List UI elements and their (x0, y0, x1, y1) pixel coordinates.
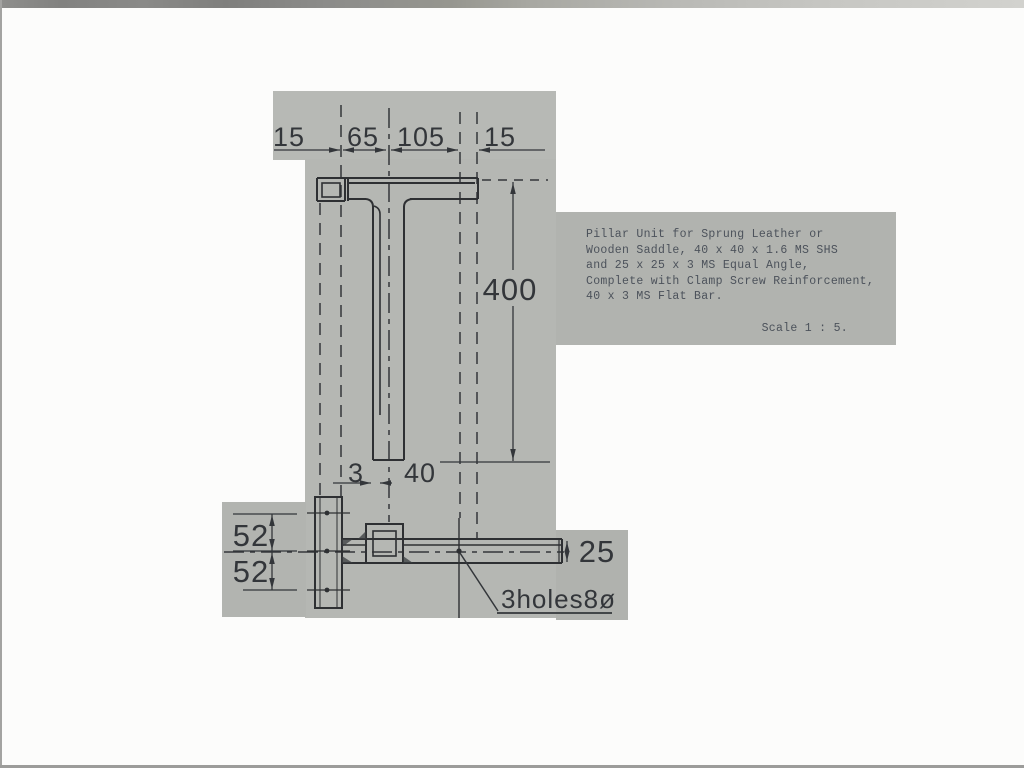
scanned-drawing-photo: Pillar Unit for Sprung Leather or Wooden… (0, 0, 1024, 768)
dimension-lines (233, 150, 612, 613)
dim-pillar-width: 40 (404, 458, 436, 488)
technical-drawing: 15 65 105 15 400 3 40 52 52 25 3holes8ø (0, 0, 1024, 768)
dim-hole-spacing-lower: 52 (233, 554, 269, 589)
dim-hole-spacing-upper: 52 (233, 518, 269, 553)
dim-top-span-right: 105 (397, 122, 445, 152)
dim-pillar-height: 400 (483, 272, 538, 307)
dim-top-span-left: 65 (347, 122, 379, 152)
dim-top-right-margin: 15 (484, 122, 516, 152)
dim-bar-height: 25 (579, 534, 615, 569)
dim-wall-thickness: 3 (348, 458, 364, 488)
holes-callout: 3holes8ø (501, 584, 616, 614)
dim-top-left-margin: 15 (273, 122, 305, 152)
pillar-outline (317, 178, 478, 460)
